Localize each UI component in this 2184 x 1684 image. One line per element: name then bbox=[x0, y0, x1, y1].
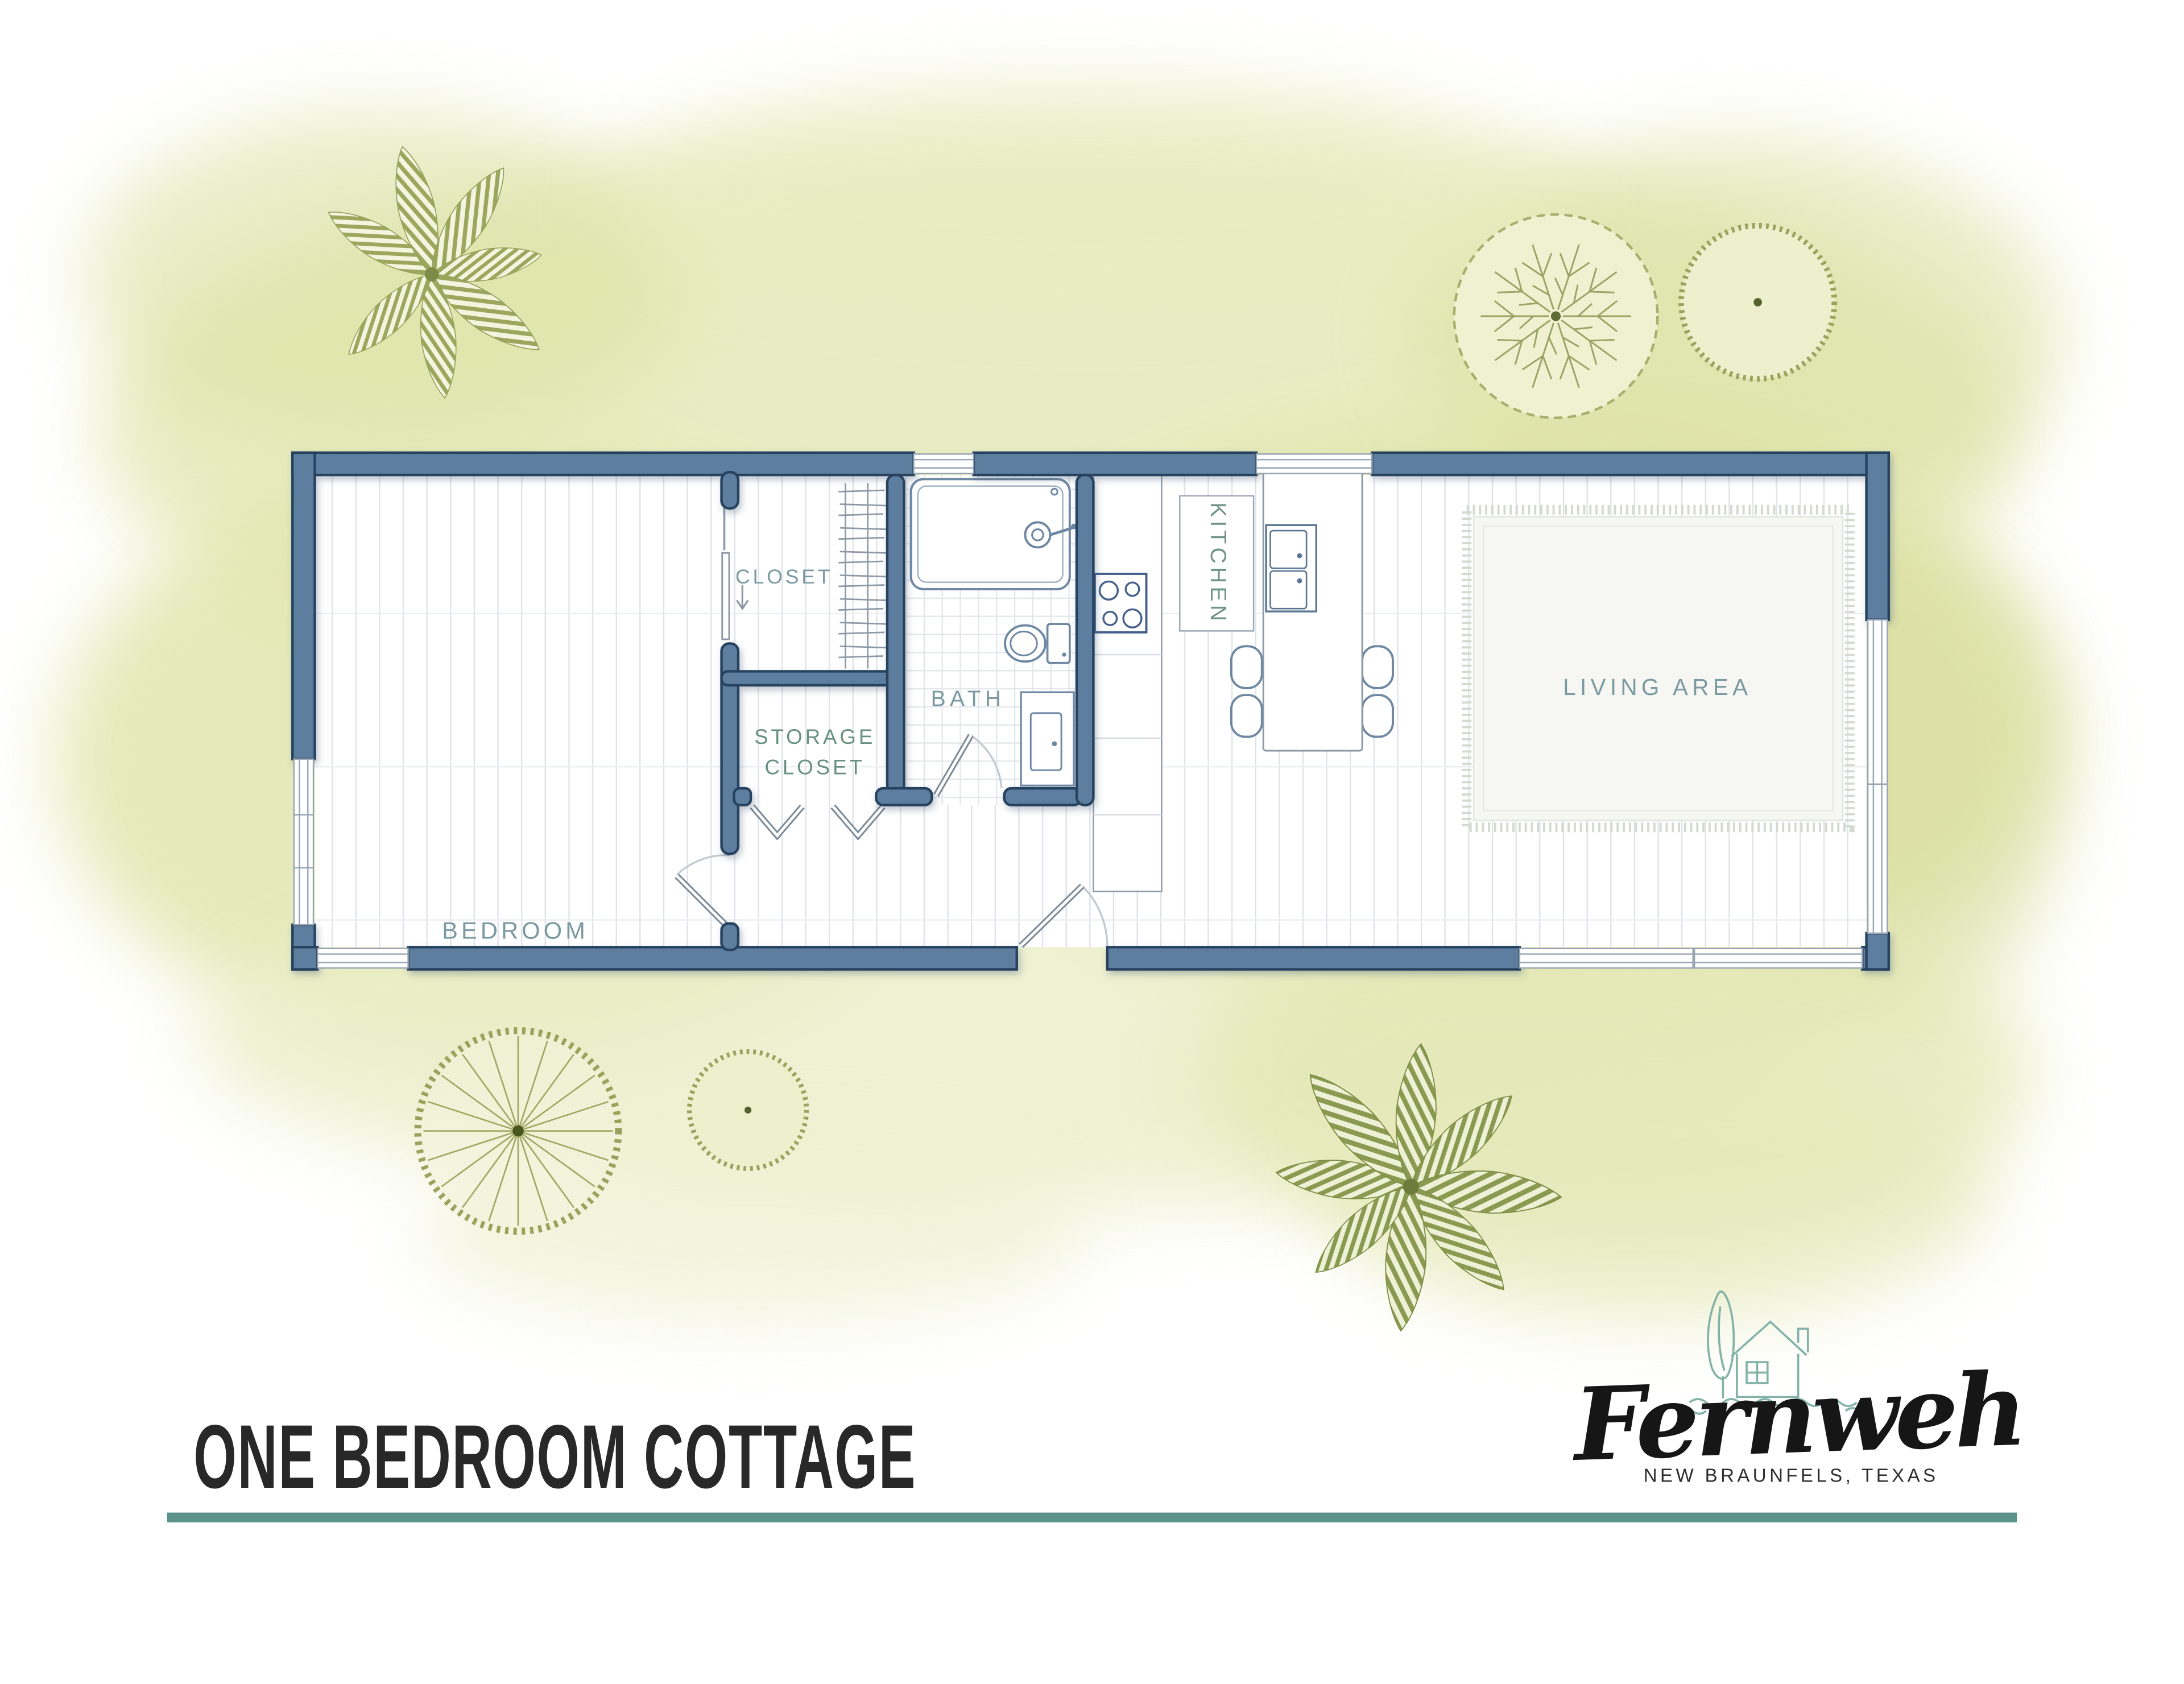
wall bbox=[974, 453, 1256, 475]
wall bbox=[1107, 947, 1520, 969]
wall bbox=[292, 453, 315, 759]
wall bbox=[722, 671, 904, 685]
kitchen-label: KITCHEN bbox=[1206, 502, 1230, 624]
vanity-sink bbox=[1021, 692, 1074, 785]
wall bbox=[876, 788, 932, 805]
round-shrub-bottom-left-icon bbox=[689, 1052, 806, 1169]
wall bbox=[1372, 453, 1889, 475]
brand-location: NEW BRAUNFELS, TEXAS bbox=[1644, 1465, 1922, 1486]
wall bbox=[292, 453, 913, 475]
window bbox=[294, 759, 313, 925]
round-shrub-top-right-icon bbox=[1681, 226, 1834, 379]
closet-label: CLOSET bbox=[735, 565, 833, 588]
window bbox=[1868, 620, 1887, 933]
window bbox=[1520, 949, 1862, 968]
window bbox=[317, 949, 408, 968]
bedroom-label: BEDROOM bbox=[442, 917, 589, 944]
wall bbox=[408, 947, 1017, 969]
bath-label: BATH bbox=[931, 687, 1006, 711]
wall bbox=[1004, 788, 1081, 805]
wall bbox=[1077, 475, 1093, 805]
wall bbox=[292, 947, 317, 969]
storage-closet-label-line2: CLOSET bbox=[764, 756, 864, 779]
toilet bbox=[1005, 624, 1070, 663]
stool bbox=[1362, 695, 1393, 737]
wall bbox=[722, 472, 738, 508]
wall bbox=[1867, 453, 1889, 620]
kitchen-counter bbox=[1093, 475, 1161, 891]
stool bbox=[1231, 695, 1262, 737]
wall bbox=[722, 924, 738, 950]
area-rug bbox=[1467, 510, 1850, 827]
storage-closet-label-line1: STORAGE bbox=[754, 725, 875, 748]
living-area-label: LIVING AREA bbox=[1563, 674, 1752, 700]
stool bbox=[1362, 646, 1393, 688]
stool bbox=[1231, 646, 1262, 688]
palm-plant-top-left-icon bbox=[298, 131, 573, 416]
window bbox=[1256, 454, 1372, 473]
cooktop-icon bbox=[1095, 574, 1147, 632]
shower bbox=[911, 479, 1077, 589]
island-cabinet bbox=[1266, 525, 1316, 611]
page-title: ONE BEDROOM COTTAGE bbox=[193, 1404, 916, 1509]
branched-tree-top-right-icon bbox=[1454, 214, 1658, 418]
spoke-tree-bottom-left-icon bbox=[418, 1031, 619, 1231]
accent-rule bbox=[167, 1513, 2017, 1522]
wall bbox=[734, 788, 751, 805]
wall bbox=[887, 475, 904, 792]
palm-plant-bottom-right-icon bbox=[1247, 1012, 1591, 1358]
page: BEDROOM CLOSET STORAGE CLOSET BATH KITCH… bbox=[0, 0, 2184, 1684]
window bbox=[914, 454, 974, 473]
brand-name: Fernweh bbox=[1572, 1360, 1993, 1475]
wall bbox=[1867, 933, 1889, 970]
